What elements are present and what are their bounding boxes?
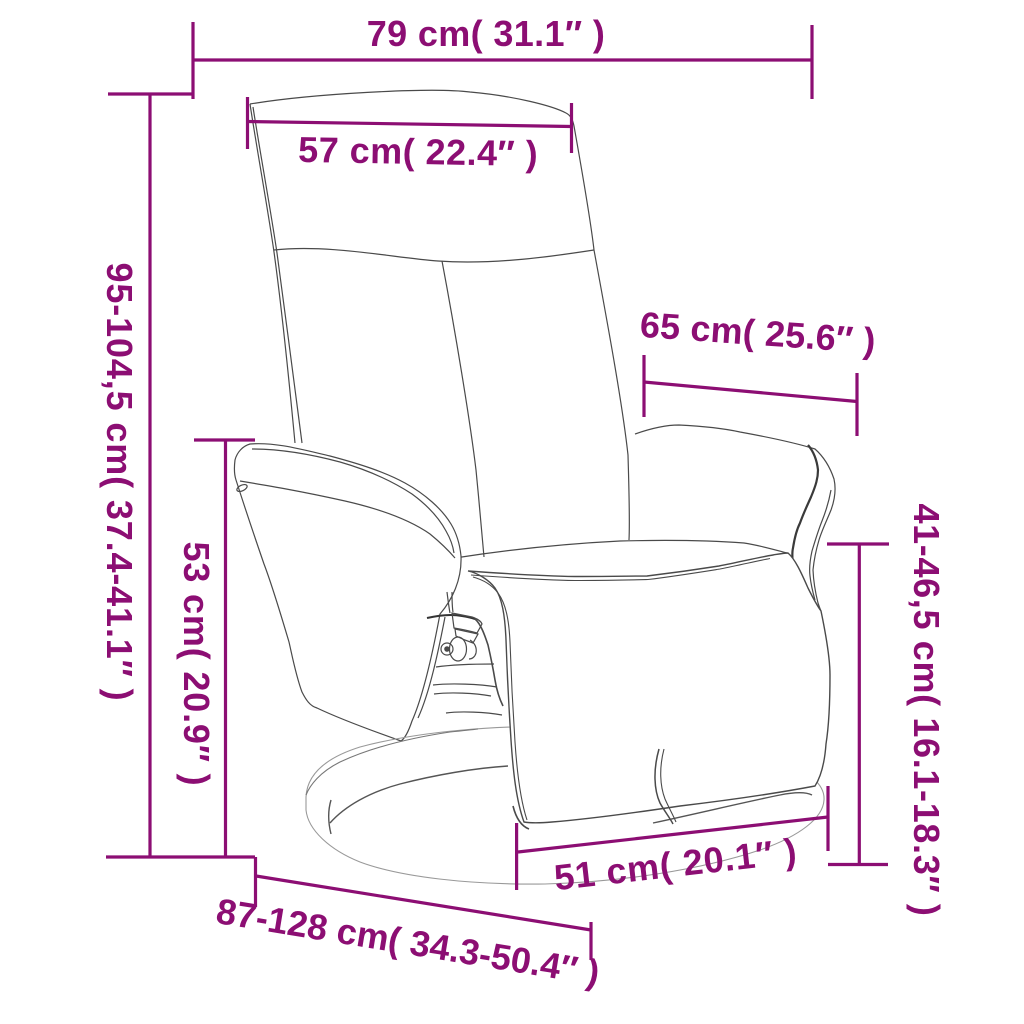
- svg-text:57 cm( 22.4″ ): 57 cm( 22.4″ ): [298, 129, 539, 174]
- svg-text:41-46,5 cm( 16.1-18.3″ ): 41-46,5 cm( 16.1-18.3″ ): [906, 503, 947, 916]
- svg-text:53 cm( 20.9″ ): 53 cm( 20.9″ ): [176, 542, 217, 787]
- svg-text:79 cm( 31.1″ ): 79 cm( 31.1″ ): [367, 13, 606, 54]
- svg-text:95-104,5 cm( 37.4-41.1″ ): 95-104,5 cm( 37.4-41.1″ ): [99, 263, 140, 702]
